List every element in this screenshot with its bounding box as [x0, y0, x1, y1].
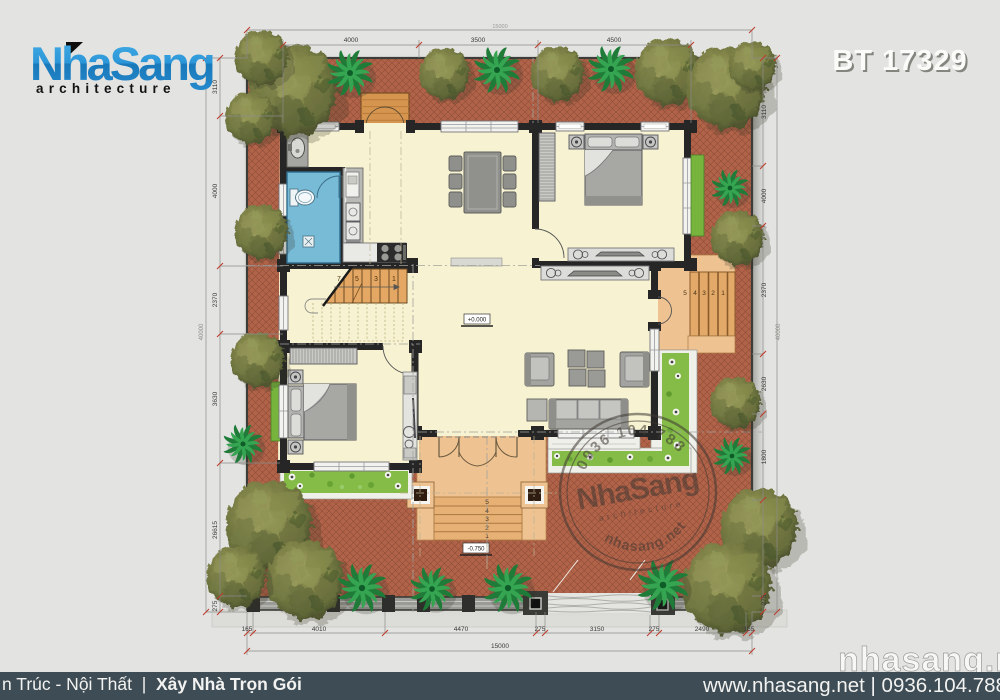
svg-text:1: 1: [392, 276, 396, 283]
svg-text:165: 165: [744, 626, 755, 633]
svg-text:275: 275: [535, 626, 546, 633]
svg-text:4000: 4000: [761, 188, 768, 203]
svg-text:4470: 4470: [454, 626, 469, 633]
svg-text:2370: 2370: [761, 282, 768, 297]
svg-text:3630: 3630: [212, 391, 219, 406]
svg-text:40000: 40000: [776, 323, 782, 340]
svg-text:www.nhasang.net | 0936.104.788: www.nhasang.net | 0936.104.788: [702, 674, 1000, 697]
svg-text:4000: 4000: [212, 183, 219, 198]
svg-text:5: 5: [355, 276, 359, 283]
svg-text:15000: 15000: [491, 643, 509, 650]
svg-text:4: 4: [693, 290, 697, 297]
svg-text:4500: 4500: [607, 37, 622, 44]
svg-text:5: 5: [683, 290, 687, 297]
svg-text:26615: 26615: [212, 521, 219, 539]
svg-text:3110: 3110: [212, 80, 219, 94]
svg-text:2370: 2370: [212, 292, 219, 307]
svg-text:3: 3: [702, 290, 706, 297]
svg-text:2490: 2490: [695, 626, 710, 633]
svg-text:3: 3: [374, 276, 378, 283]
svg-text:1: 1: [721, 290, 725, 297]
svg-text:1800: 1800: [761, 449, 768, 464]
svg-text:BT 17329: BT 17329: [832, 45, 967, 77]
svg-text:n Trúc - Nội Thất | Xây Nhà: n Trúc - Nội Thất | Xây Nhà Trọn Gói: [2, 674, 302, 694]
svg-text:4000: 4000: [344, 37, 359, 44]
svg-text:architecture: architecture: [36, 81, 176, 96]
svg-text:7: 7: [337, 276, 341, 283]
svg-text:3150: 3150: [590, 626, 605, 633]
svg-text:2630: 2630: [761, 376, 768, 391]
svg-text:275: 275: [649, 626, 660, 633]
svg-text:275: 275: [761, 594, 768, 605]
svg-text:3500: 3500: [471, 37, 486, 44]
svg-text:-0.750: -0.750: [467, 547, 485, 553]
svg-text:15000: 15000: [492, 24, 507, 30]
svg-text:165: 165: [242, 626, 253, 633]
svg-text:40000: 40000: [199, 323, 205, 340]
svg-text:2: 2: [711, 290, 715, 297]
svg-text:4010: 4010: [312, 626, 327, 633]
svg-text:+0.000: +0.000: [468, 318, 487, 324]
svg-text:275: 275: [212, 600, 219, 611]
svg-text:3110: 3110: [761, 105, 768, 119]
